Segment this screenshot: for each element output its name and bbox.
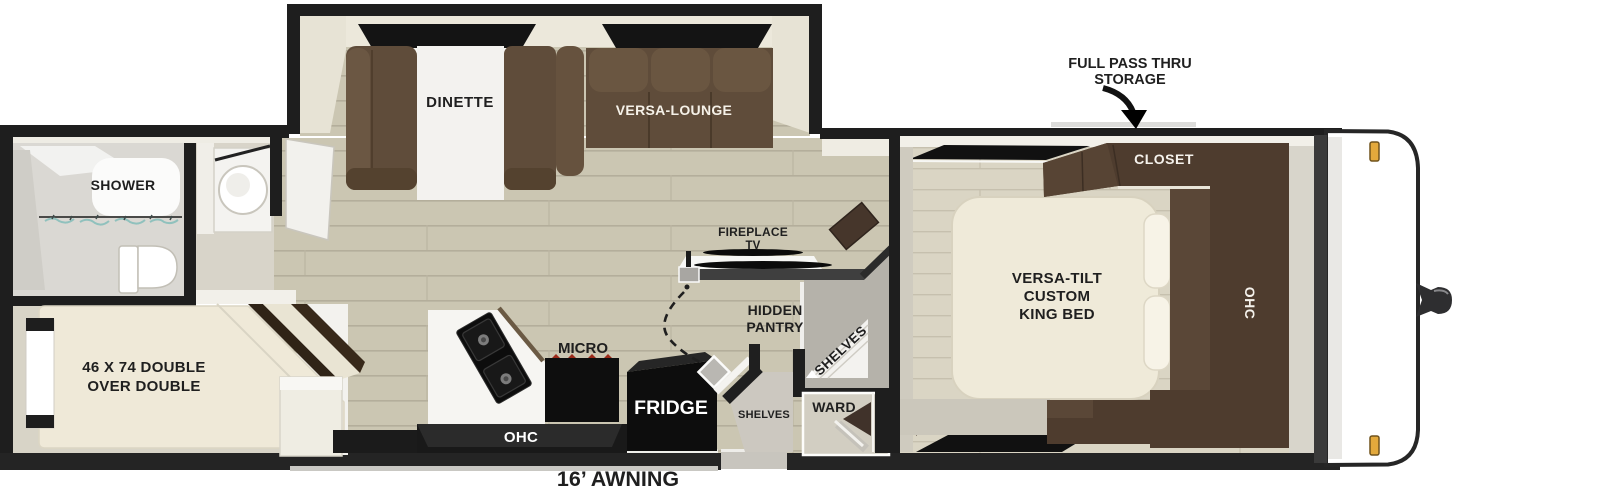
svg-text:SHOWER: SHOWER xyxy=(91,177,156,193)
svg-text:CLOSET: CLOSET xyxy=(1134,151,1194,167)
svg-text:PANTRY: PANTRY xyxy=(746,319,804,335)
svg-text:DINETTE: DINETTE xyxy=(426,94,494,111)
svg-text:MICRO: MICRO xyxy=(558,340,608,357)
svg-text:VERSA-TILT: VERSA-TILT xyxy=(1012,270,1102,287)
svg-text:WARD: WARD xyxy=(812,399,856,415)
svg-text:HIDDEN: HIDDEN xyxy=(748,302,803,318)
svg-text:KING BED: KING BED xyxy=(1019,306,1095,323)
svg-text:OHC: OHC xyxy=(1242,287,1258,320)
svg-text:CUSTOM: CUSTOM xyxy=(1024,288,1091,305)
svg-text:VERSA-LOUNGE: VERSA-LOUNGE xyxy=(616,102,732,118)
svg-text:46 X 74 DOUBLE: 46 X 74 DOUBLE xyxy=(82,359,205,376)
svg-text:16’ AWNING: 16’ AWNING xyxy=(557,467,679,488)
svg-text:OVER DOUBLE: OVER DOUBLE xyxy=(87,378,200,395)
svg-text:FRIDGE: FRIDGE xyxy=(634,397,708,419)
svg-text:FULL PASS THRU: FULL PASS THRU xyxy=(1068,56,1192,72)
svg-text:FIREPLACE: FIREPLACE xyxy=(718,225,788,239)
svg-text:OHC: OHC xyxy=(504,429,538,446)
svg-text:SHELVES: SHELVES xyxy=(738,409,790,421)
